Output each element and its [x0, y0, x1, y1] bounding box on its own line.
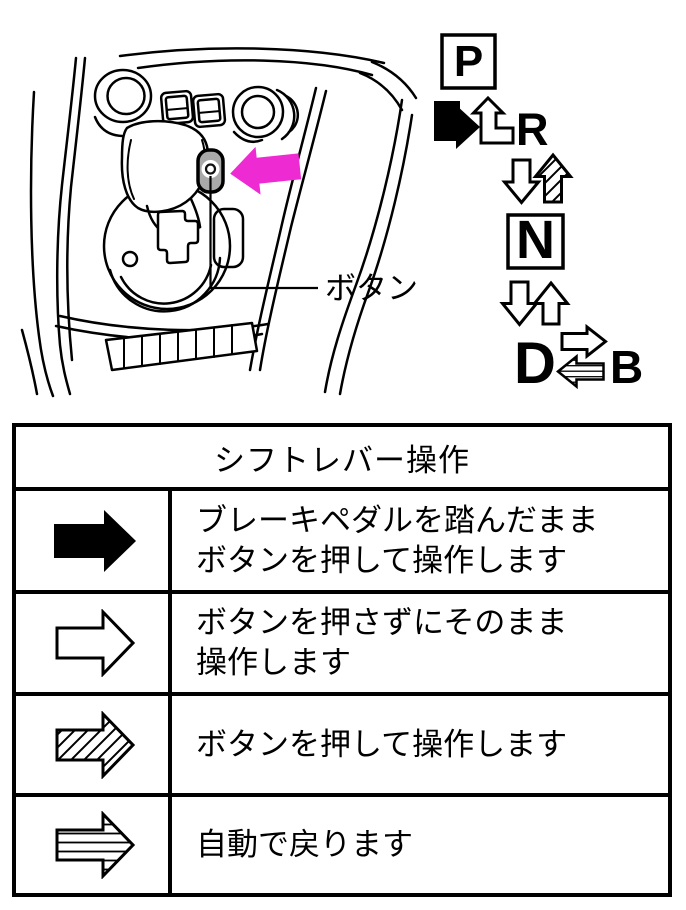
legend-text-line: ブレーキペダルを踏んだまま: [196, 501, 668, 541]
neutral-letter: N: [516, 210, 555, 270]
legend-cell-striped-text: 自動で戻ります: [172, 793, 668, 893]
legend-text-line: ボタンを押して操作します: [196, 725, 668, 765]
outline-arrow-icon: [55, 609, 135, 677]
legend-text-line: 操作します: [196, 643, 668, 683]
reverse-letter: R: [516, 104, 549, 155]
console-right-edge2: [340, 115, 412, 394]
shift-pattern-diagram: P R N D B: [434, 35, 643, 396]
legend-cell-solid-arrow: [16, 487, 172, 590]
shift-operation-table: シフトレバー操作 ブレーキペダルを踏んだまま ボタンを押して操作します ボタンを…: [12, 423, 672, 897]
b-to-d-striped-arrow: [558, 357, 604, 387]
console-right-edge: [325, 100, 402, 392]
d-to-b-right-arrow: [562, 327, 606, 356]
console-bottom-left-line: [22, 330, 37, 394]
manual-page: ボタン P R N D B シフトレバー操作: [0, 0, 686, 910]
shift-gate-slot: [158, 211, 198, 263]
dash-corner-line2: [360, 73, 402, 110]
legend-cell-hatched-arrow: [16, 692, 172, 793]
button-label: ボタン: [325, 271, 418, 306]
right-dial-knob: [233, 87, 298, 142]
n-to-r-hatched-up-arrow: [536, 155, 571, 202]
solid-black-arrow-icon: [52, 508, 138, 574]
legend-cell-outline-arrow: [16, 590, 172, 692]
panel-switch-left: [161, 91, 194, 124]
console-left-edge: [57, 58, 76, 394]
gate-release-hole: [123, 252, 137, 266]
legend-cell-hatched-text: ボタンを押して操作します: [172, 692, 668, 793]
diagonal-hatched-arrow-icon: [55, 711, 135, 779]
legend-text-line: ボタンを押さずにそのまま: [196, 603, 668, 643]
r-to-p-outline-arrow: [474, 98, 514, 143]
console-right-pillar: [250, 88, 316, 370]
legend-text-line: 自動で戻ります: [196, 825, 668, 865]
horizontal-striped-arrow-icon: [55, 811, 135, 879]
table-title: シフトレバー操作: [16, 427, 668, 487]
n-to-d-down-arrow: [503, 282, 537, 325]
r-to-n-down-arrow: [505, 160, 539, 203]
console-far-left-edge: [31, 92, 53, 396]
legend-cell-solid-text: ブレーキペダルを踏んだまま ボタンを押して操作します: [172, 487, 668, 590]
legend-cell-striped-arrow: [16, 793, 172, 893]
button-leader-line: [211, 176, 319, 288]
brake-letter: B: [610, 341, 643, 393]
legend-text-line: ボタンを押して操作します: [196, 541, 668, 581]
drive-letter: D: [514, 331, 556, 396]
dash-top-edge-line2: [138, 60, 372, 75]
console-line-drawing: ボタン: [22, 48, 418, 396]
shift-lever-figure: ボタン P R N D B: [0, 0, 686, 412]
panel-switch-right: [193, 94, 226, 127]
park-letter: P: [454, 37, 483, 86]
d-to-n-up-arrow: [535, 283, 568, 324]
p-to-r-solid-arrow: [434, 101, 480, 149]
legend-cell-outline-text: ボタンを押さずにそのまま 操作します: [172, 590, 668, 692]
lower-vent: [56, 316, 268, 370]
dash-corner-line: [372, 62, 416, 98]
